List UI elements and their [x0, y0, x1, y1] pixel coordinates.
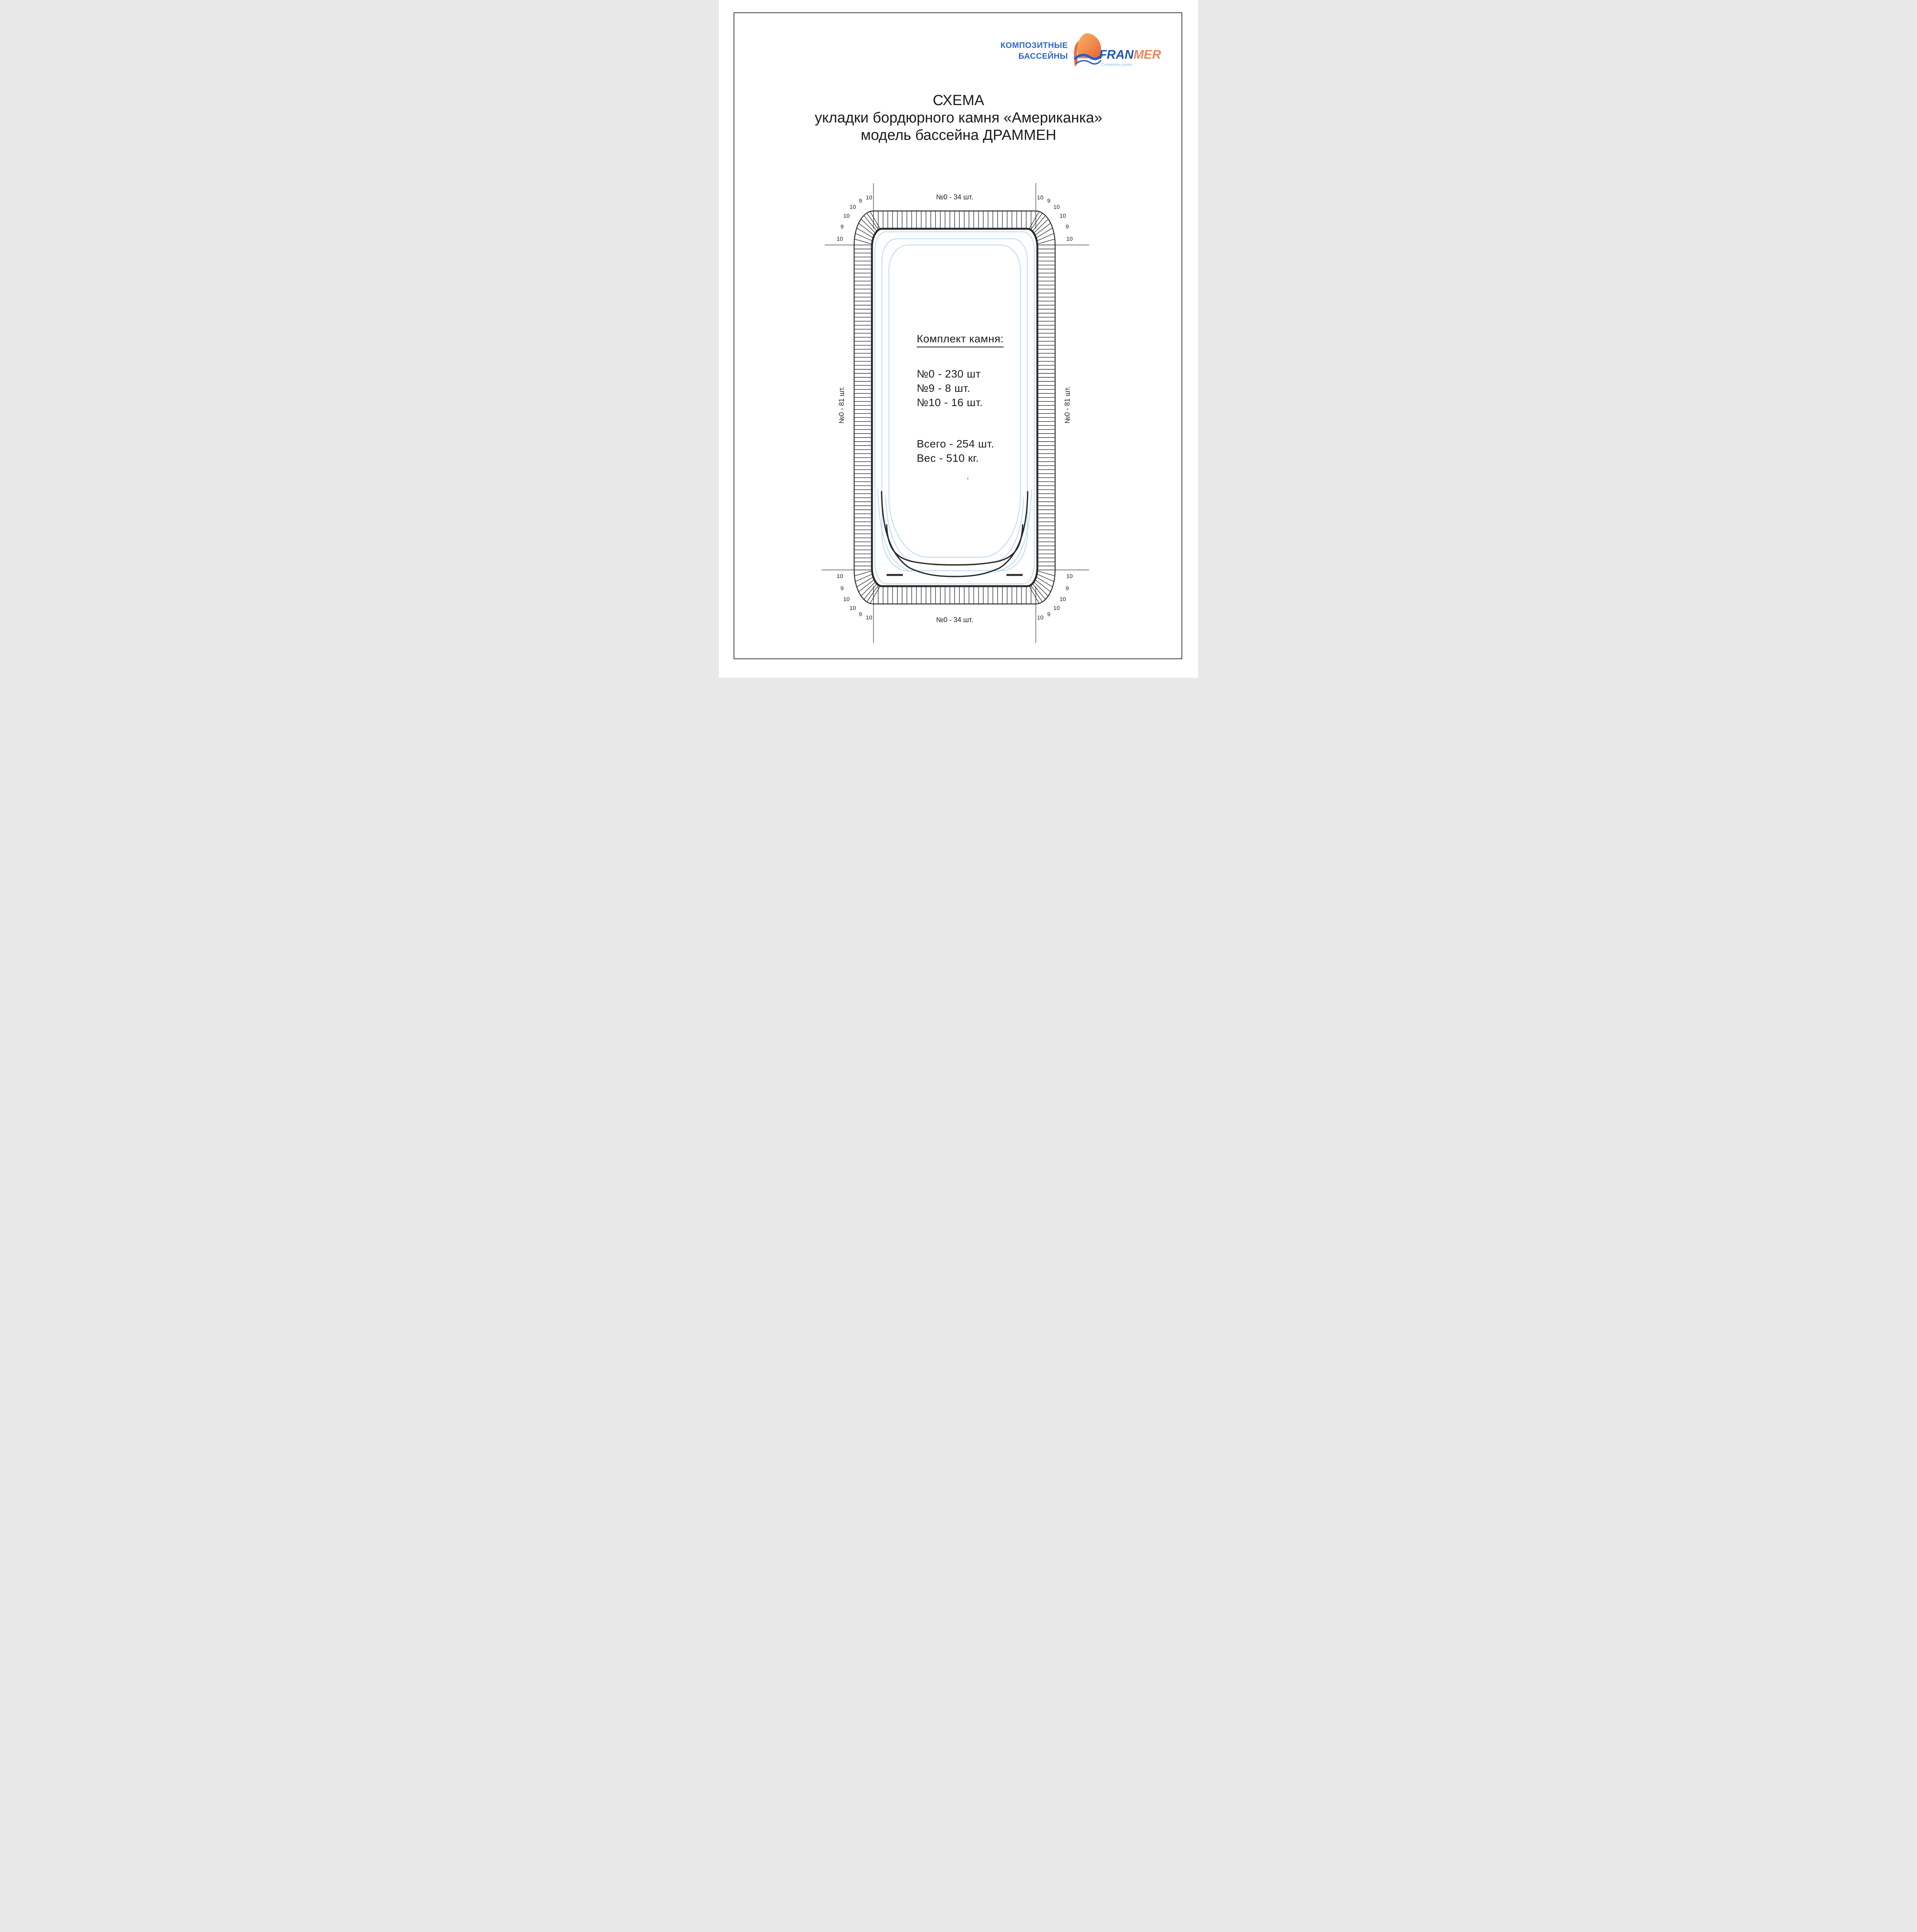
legend-item: №10 - 16 шт. — [917, 395, 1004, 410]
logo-cyrillic-text: КОМПОЗИТНЫЕ БАССЕЙНЫ — [1001, 40, 1068, 62]
logo-text-line1: КОМПОЗИТНЫЕ — [1001, 40, 1068, 51]
franmer-sun-wave-icon — [1073, 32, 1103, 68]
right-edge-count-label: №0 - 81 шт. — [1064, 386, 1072, 423]
legend-total-count: Всего - 254 шт. — [917, 437, 1004, 451]
title-line2: укладки бордюрного камня «Американка» — [719, 109, 1198, 127]
brand-mer: MER — [1134, 48, 1161, 61]
title-line1: СХЕМА — [719, 92, 1198, 109]
document-title: СХЕМА укладки бордюрного камня «Американ… — [719, 92, 1198, 144]
stone-kit-legend: Комплект камня: №0 - 230 шт №9 - 8 шт. №… — [917, 332, 1004, 465]
left-edge-count-label: №0 - 81 шт. — [838, 386, 846, 423]
title-line3: модель бассейна ДРАММЕН — [719, 127, 1198, 144]
brand-fran: FRAN — [1099, 48, 1134, 61]
top-edge-count-label: №0 - 34 шт. — [936, 193, 973, 201]
scan-speck — [967, 478, 969, 480]
legend-heading: Комплект камня: — [917, 332, 1004, 347]
scanned-page: КОМПОЗИТНЫЕ БАССЕЙНЫ FRANMER Composite p… — [719, 0, 1198, 678]
legend-item: №9 - 8 шт. — [917, 381, 1004, 395]
bottom-edge-count-label: №0 - 34 шт. — [936, 616, 973, 624]
brand-wordmark: FRANMER — [1099, 48, 1161, 61]
brand-tagline: Composite pools — [1102, 63, 1132, 67]
logo-wave2-icon — [1076, 61, 1101, 64]
legend-total-weight: Вес - 510 кг. — [917, 451, 1004, 465]
legend-item: №0 - 230 шт — [917, 367, 1004, 381]
logo-text-line2: БАССЕЙНЫ — [1001, 51, 1068, 62]
